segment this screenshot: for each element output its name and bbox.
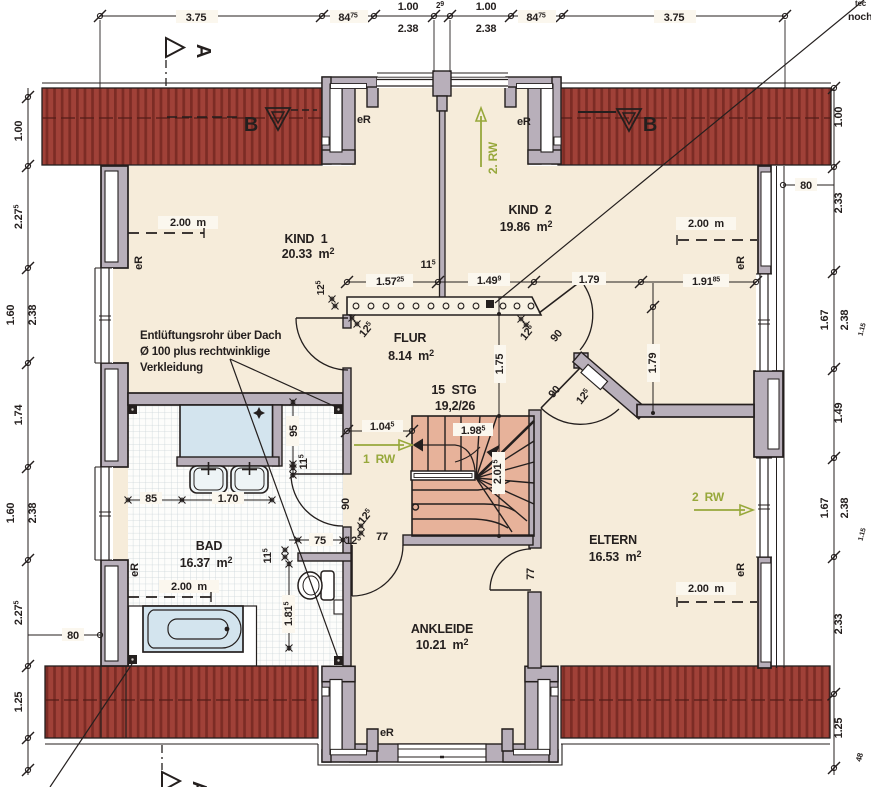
svg-text:ELTERN: ELTERN xyxy=(589,533,637,547)
svg-text:2.38: 2.38 xyxy=(839,498,851,519)
svg-text:eR: eR xyxy=(735,563,747,577)
svg-text:1.00: 1.00 xyxy=(476,1,497,13)
svg-text:3.75: 3.75 xyxy=(186,12,207,24)
svg-text:eR: eR xyxy=(517,116,531,128)
svg-text:1.74: 1.74 xyxy=(13,404,25,426)
svg-text:8.14 m2: 8.14 m2 xyxy=(388,348,434,363)
svg-text:eR: eR xyxy=(129,563,141,577)
svg-text:77: 77 xyxy=(376,531,388,543)
svg-text:1.00: 1.00 xyxy=(13,121,25,142)
svg-text:19,2/26: 19,2/26 xyxy=(435,399,476,413)
svg-text:A: A xyxy=(188,781,210,787)
svg-text:3.75: 3.75 xyxy=(664,12,685,24)
svg-text:80: 80 xyxy=(800,180,812,192)
svg-text:85: 85 xyxy=(145,493,157,505)
svg-text:eR: eR xyxy=(133,256,145,270)
svg-text:75: 75 xyxy=(314,535,326,547)
svg-text:FLUR: FLUR xyxy=(394,331,427,345)
svg-text:noch: noch xyxy=(848,11,871,23)
svg-text:B: B xyxy=(643,114,657,136)
svg-text:KIND 2: KIND 2 xyxy=(508,203,551,217)
svg-text:eR: eR xyxy=(735,256,747,270)
svg-text:10.21 m2: 10.21 m2 xyxy=(416,637,469,652)
svg-text:1.79: 1.79 xyxy=(579,274,600,286)
svg-text:2.33: 2.33 xyxy=(833,614,845,635)
svg-text:tec: tec xyxy=(855,0,867,8)
svg-text:2.38: 2.38 xyxy=(839,310,851,331)
svg-text:2.00 m: 2.00 m xyxy=(171,581,207,593)
svg-text:1.70: 1.70 xyxy=(218,493,239,505)
svg-text:B: B xyxy=(244,114,258,136)
svg-text:2.33: 2.33 xyxy=(833,193,845,214)
svg-text:2.00 m: 2.00 m xyxy=(688,218,724,230)
svg-text:90: 90 xyxy=(340,498,352,510)
svg-text:Verkleidung: Verkleidung xyxy=(140,362,203,374)
svg-text:1.79: 1.79 xyxy=(647,353,659,374)
svg-text:2.00 m: 2.00 m xyxy=(170,217,206,229)
svg-text:1.67: 1.67 xyxy=(819,498,831,519)
svg-text:77: 77 xyxy=(525,568,537,580)
svg-text:16.37 m2: 16.37 m2 xyxy=(180,555,233,570)
svg-text:95: 95 xyxy=(288,425,300,437)
svg-text:1.25: 1.25 xyxy=(833,718,845,739)
svg-text:15 STG: 15 STG xyxy=(431,383,476,397)
svg-text:1.25: 1.25 xyxy=(13,692,25,713)
svg-text:2.00 m: 2.00 m xyxy=(688,583,724,595)
svg-text:eR: eR xyxy=(357,114,371,126)
svg-text:1.00: 1.00 xyxy=(833,107,845,128)
svg-text:1.60: 1.60 xyxy=(5,503,17,524)
svg-text:eR: eR xyxy=(380,727,394,739)
svg-text:20.33 m2: 20.33 m2 xyxy=(282,246,335,261)
svg-text:2.38: 2.38 xyxy=(27,503,39,524)
svg-text:KIND 1: KIND 1 xyxy=(284,232,327,246)
svg-text:19.86 m2: 19.86 m2 xyxy=(500,219,553,234)
svg-text:2.38: 2.38 xyxy=(476,23,497,35)
svg-text:80: 80 xyxy=(67,630,79,642)
svg-text:2.38: 2.38 xyxy=(398,23,419,35)
svg-text:1.67: 1.67 xyxy=(819,310,831,331)
svg-text:2. RW: 2. RW xyxy=(486,141,500,174)
svg-text:1.49: 1.49 xyxy=(833,403,845,424)
svg-text:2.38: 2.38 xyxy=(27,305,39,326)
svg-text:Ø 100 plus rechtwinklige: Ø 100 plus rechtwinklige xyxy=(140,346,270,358)
svg-text:1.00: 1.00 xyxy=(398,1,419,13)
svg-text:1.75: 1.75 xyxy=(494,354,506,375)
svg-text:2 RW: 2 RW xyxy=(692,490,725,504)
svg-text:16.53 m2: 16.53 m2 xyxy=(589,549,642,564)
svg-text:ANKLEIDE: ANKLEIDE xyxy=(411,622,473,636)
svg-text:A: A xyxy=(192,44,214,58)
svg-text:Entlüftungsrohr über Dach: Entlüftungsrohr über Dach xyxy=(140,330,281,342)
svg-text:1.60: 1.60 xyxy=(5,305,17,326)
svg-text:BAD: BAD xyxy=(196,539,223,553)
svg-text:1 RW: 1 RW xyxy=(363,452,396,466)
